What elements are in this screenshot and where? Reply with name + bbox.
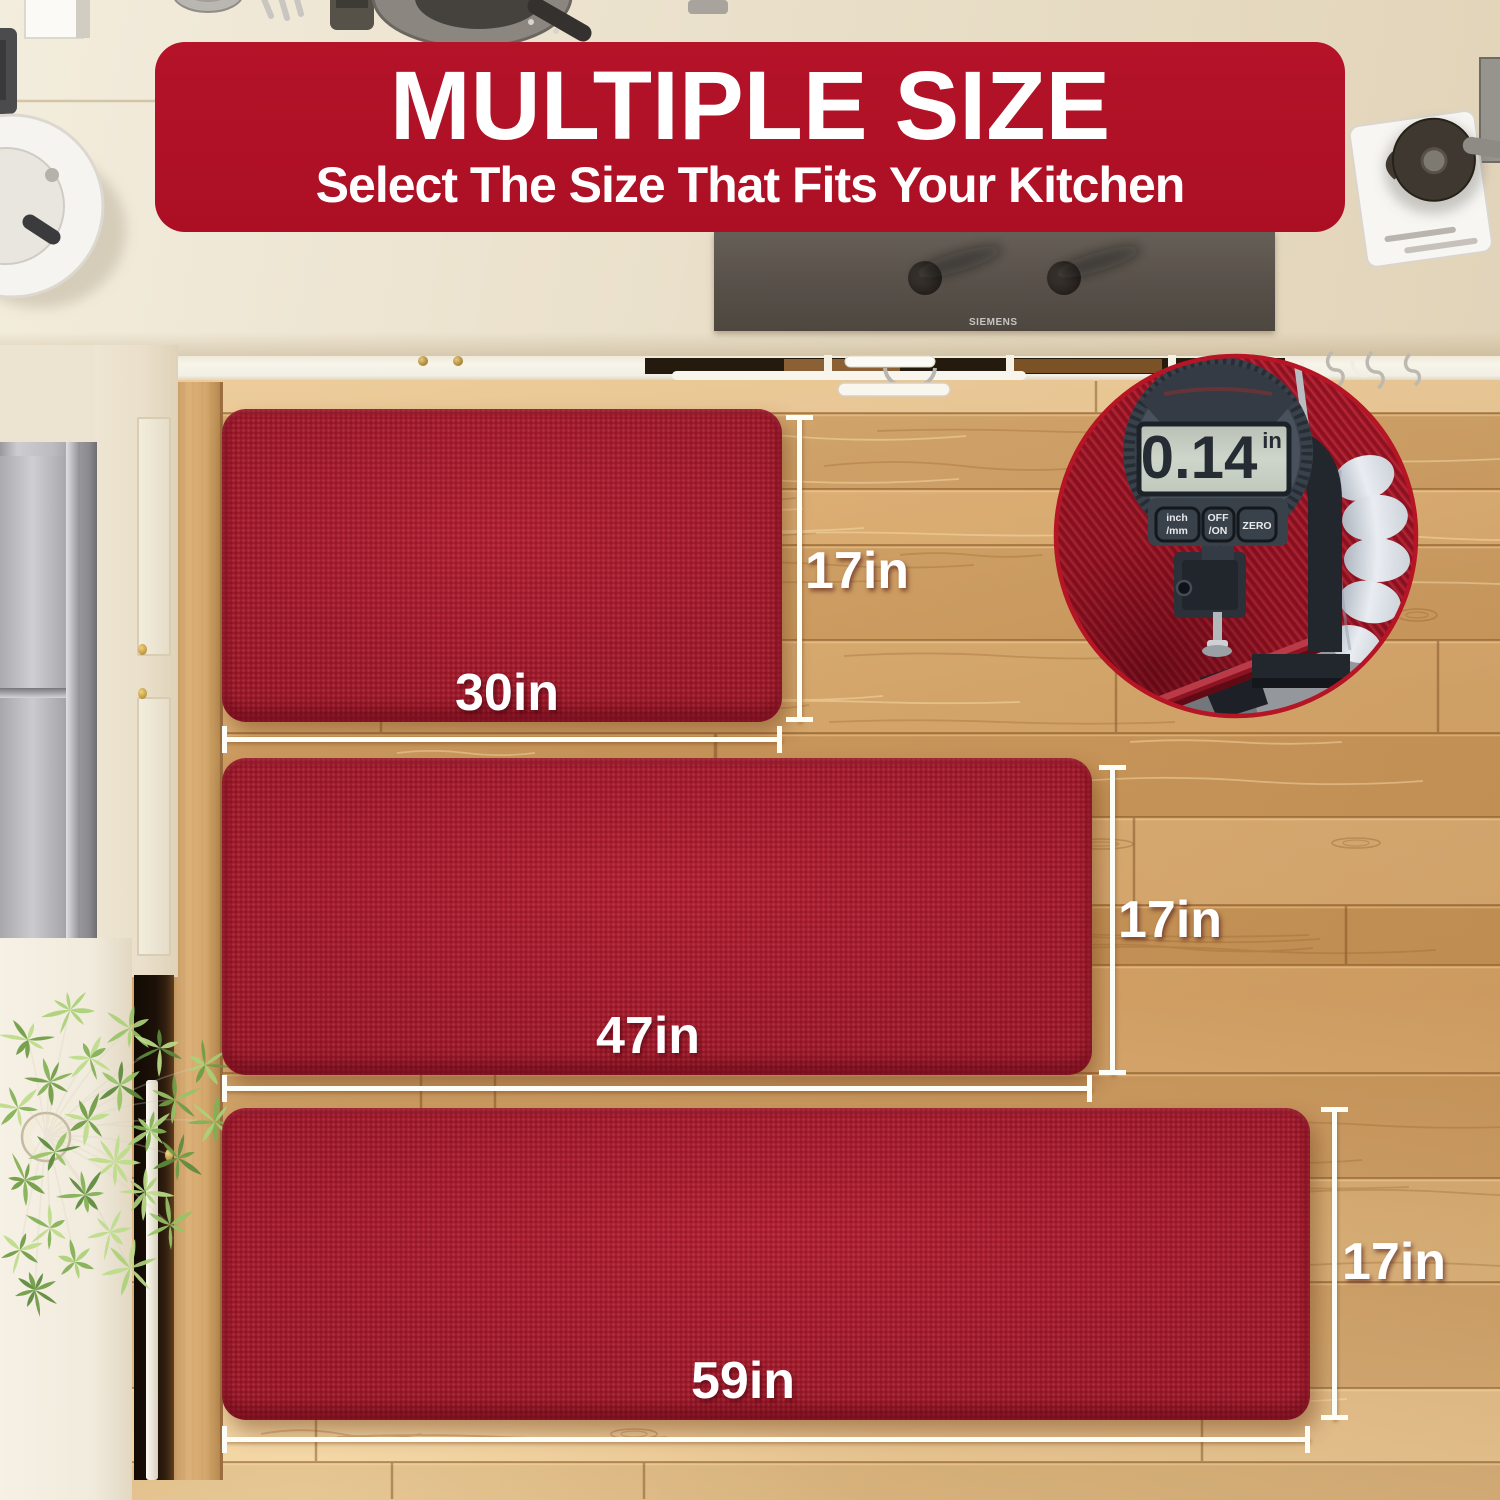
svg-text:inch: inch	[1166, 512, 1188, 524]
svg-text:in: in	[1262, 428, 1282, 453]
svg-text:ZERO: ZERO	[1242, 520, 1271, 532]
svg-text:OFF: OFF	[1208, 512, 1230, 524]
svg-text:/ON: /ON	[1209, 525, 1228, 537]
svg-text:0.14: 0.14	[1141, 424, 1258, 491]
svg-text:/mm: /mm	[1166, 525, 1188, 537]
